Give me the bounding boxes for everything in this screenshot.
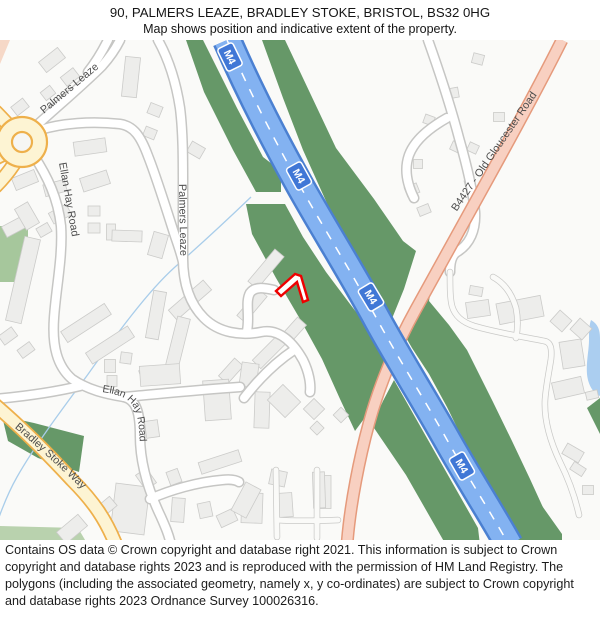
road-label-palmers-leaze: Palmers Leaze <box>176 184 189 256</box>
building <box>105 360 116 373</box>
building <box>120 352 132 364</box>
page-subtitle: Map shows position and indicative extent… <box>0 21 600 37</box>
building <box>88 223 100 233</box>
building <box>559 339 585 369</box>
building <box>112 230 142 242</box>
track-road <box>276 470 277 537</box>
copyright-footer: Contains OS data © Crown copyright and d… <box>0 540 600 625</box>
roundabout-island <box>12 132 32 152</box>
building <box>465 299 490 318</box>
track-road <box>277 520 338 521</box>
building <box>88 206 100 216</box>
building <box>254 392 270 429</box>
building <box>583 486 594 495</box>
building <box>171 498 186 523</box>
map-header: 90, PALMERS LEAZE, BRADLEY STOKE, BRISTO… <box>0 0 600 40</box>
page-title: 90, PALMERS LEAZE, BRADLEY STOKE, BRISTO… <box>0 0 600 21</box>
building <box>494 113 505 122</box>
building <box>139 364 180 387</box>
building <box>469 285 483 296</box>
building <box>197 501 213 518</box>
map-svg: Palmers Leaze Palmers Leaze Ellan Hay Ro… <box>0 40 600 540</box>
copyright-text: Contains OS data © Crown copyright and d… <box>0 540 600 610</box>
map-canvas: Palmers Leaze Palmers Leaze Ellan Hay Ro… <box>0 40 600 540</box>
building <box>414 160 423 169</box>
